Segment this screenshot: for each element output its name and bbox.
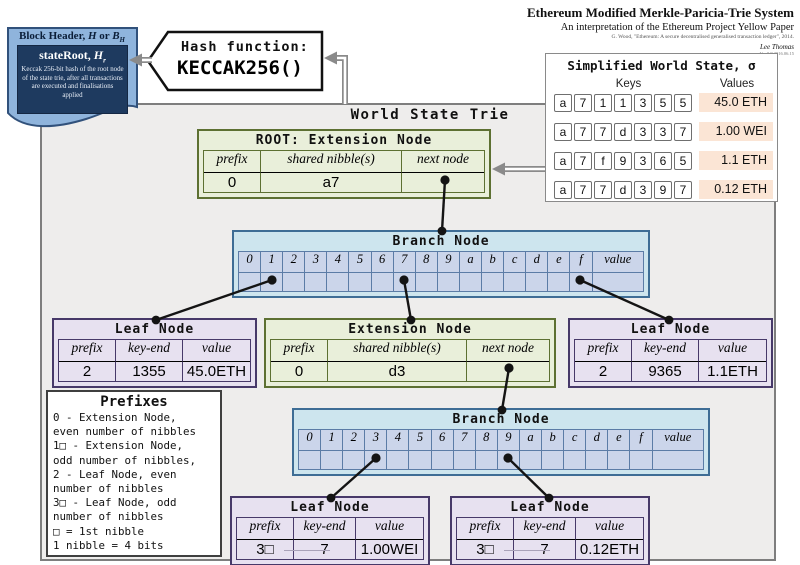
account-value-badge: 1.1 ETH xyxy=(699,151,773,170)
branch-slot-label: a xyxy=(460,252,482,272)
key-nibble-cell: d xyxy=(614,123,632,141)
root-extension-value-row: 0 a7 xyxy=(204,172,484,192)
shared-nibbles-header: shared nibble(s) xyxy=(261,151,402,172)
leaf-node-bottom-right-table: prefix key-end value 3□ 7 0.12ETH xyxy=(456,517,644,560)
branch-slot-cell xyxy=(476,450,498,469)
key-end-header: key-end xyxy=(514,518,576,539)
branch-slot-cell xyxy=(387,450,409,469)
leaf-node-right-value-row: 2 9365 1.1ETH xyxy=(575,361,766,381)
branch-node-2: Branch Node 0123456789abcdefvalue xyxy=(292,408,710,476)
key-nibble-cell: 9 xyxy=(614,152,632,170)
branch-node-2-slot-labels: 0123456789abcdefvalue xyxy=(299,430,703,450)
extension-node-header-row: prefix shared nibble(s) next node xyxy=(271,340,549,361)
leaf-value: 45.0ETH xyxy=(183,361,250,381)
branch-node-2-table: 0123456789abcdefvalue xyxy=(298,429,704,470)
leaf-value: 1.1ETH xyxy=(699,361,766,381)
root-next-node-cell xyxy=(402,172,484,192)
branch-slot-cell xyxy=(432,450,454,469)
world-state-trie-title: World State Trie xyxy=(300,107,560,123)
key-nibble-cell: 3 xyxy=(634,94,652,112)
leaf-node-bottom-left-table: prefix key-end value 3□ 7 1.00WEI xyxy=(236,517,424,560)
branch-slot-cell xyxy=(630,450,652,469)
leaf-node-right-title: Leaf Node xyxy=(574,322,767,339)
document-header: Ethereum Modified Merkle-Paricia-Trie Sy… xyxy=(527,5,794,56)
branch-slot-cell xyxy=(299,450,321,469)
document-title: Ethereum Modified Merkle-Paricia-Trie Sy… xyxy=(527,5,794,21)
document-subtitle: An interpretation of the Ethereum Projec… xyxy=(527,22,794,33)
keys-header: Keys xyxy=(556,78,701,90)
world-state-row: a 7 7 d 3 3 7 1.00 WEI xyxy=(554,122,773,141)
branch-slot-label: 7 xyxy=(394,252,416,272)
branch-slot-label: f xyxy=(570,252,592,272)
branch-node-2-title: Branch Node xyxy=(298,412,704,429)
branch-slot-label: d xyxy=(526,252,548,272)
leaf-node-bottom-right-header-row: prefix key-end value xyxy=(457,518,643,539)
extension-shared-nibbles-value: d3 xyxy=(328,361,467,381)
world-state-rows: a 7 1 1 3 5 5 45.0 ETH a 7 7 d 3 3 7 1.0… xyxy=(554,93,773,209)
root-extension-table: prefix shared nibble(s) next node 0 a7 xyxy=(203,150,485,193)
branch-slot-cell xyxy=(409,450,431,469)
branch-slot-cell xyxy=(482,272,504,291)
shared-nibbles-header: shared nibble(s) xyxy=(328,340,467,361)
branch-node-1-table: 0123456789abcdefvalue xyxy=(238,251,644,292)
branch-node-1-slot-labels: 0123456789abcdefvalue xyxy=(239,252,643,272)
branch-slot-cell xyxy=(372,272,394,291)
branch-slot-cell xyxy=(608,450,630,469)
extension-next-node-cell xyxy=(467,361,549,381)
next-node-header: next node xyxy=(402,151,484,172)
root-extension-node-title: ROOT: Extension Node xyxy=(203,133,485,150)
world-state-row: a 7 1 1 3 5 5 45.0 ETH xyxy=(554,93,773,112)
branch-slot-cell xyxy=(261,272,283,291)
leaf-node-bottom-right-value-row: 3□ 7 0.12ETH xyxy=(457,539,643,559)
branch-slot-label: 7 xyxy=(454,430,476,450)
branch-node-1-title: Branch Node xyxy=(238,234,644,251)
branch-slot-label: c xyxy=(504,252,526,272)
branch-slot-cell xyxy=(239,272,261,291)
account-value-badge: 45.0 ETH xyxy=(699,93,773,112)
extension-prefix-value: 0 xyxy=(271,361,328,381)
prefixes-legend-line: number of nibbles xyxy=(53,482,215,496)
key-nibble-cell: d xyxy=(614,181,632,199)
key-nibble-cell: 7 xyxy=(574,152,592,170)
branch-slot-cell xyxy=(305,272,327,291)
value-header: value xyxy=(699,340,766,361)
prefix-header: prefix xyxy=(271,340,328,361)
extension-node-value-row: 0 d3 xyxy=(271,361,549,381)
branch-slot-cell xyxy=(438,272,460,291)
branch-slot-label: 2 xyxy=(343,430,365,450)
branch-slot-label: 9 xyxy=(438,252,460,272)
branch-slot-cell xyxy=(542,450,564,469)
branch-slot-label: 6 xyxy=(372,252,394,272)
branch-slot-cell xyxy=(349,272,371,291)
prefixes-legend-line: odd number of nibbles, xyxy=(53,454,215,468)
branch-slot-cell xyxy=(454,450,476,469)
prefix-header: prefix xyxy=(237,518,294,539)
leaf-node-left-header-row: prefix key-end value xyxy=(59,340,250,361)
branch-slot-cell xyxy=(593,272,644,291)
leaf-node-right: Leaf Node prefix key-end value 2 9365 1.… xyxy=(568,318,773,388)
branch-slot-label: 5 xyxy=(409,430,431,450)
nibble-link-line xyxy=(284,550,330,551)
key-nibble-cell: a xyxy=(554,123,572,141)
key-nibble-cell: 7 xyxy=(574,123,592,141)
next-node-header: next node xyxy=(467,340,549,361)
leaf-node-left-title: Leaf Node xyxy=(58,322,251,339)
key-nibble-cell: 5 xyxy=(674,152,692,170)
leaf-node-left-table: prefix key-end value 2 1355 45.0ETH xyxy=(58,339,251,382)
branch-slot-label: value xyxy=(593,252,644,272)
root-shared-nibbles-value: a7 xyxy=(261,172,402,192)
prefix-header: prefix xyxy=(59,340,116,361)
prefixes-legend-line: 1□ - Extension Node, xyxy=(53,439,215,453)
leaf-value: 0.12ETH xyxy=(576,539,643,559)
key-nibble-cell: 7 xyxy=(674,181,692,199)
extension-node-table: prefix shared nibble(s) next node 0 d3 xyxy=(270,339,550,382)
branch-slot-label: 4 xyxy=(327,252,349,272)
branch-slot-label: f xyxy=(630,430,652,450)
value-header: value xyxy=(356,518,423,539)
key-nibble-cell: 3 xyxy=(634,123,652,141)
key-end-header: key-end xyxy=(116,340,183,361)
branch-slot-cell xyxy=(460,272,482,291)
hash-function-name: KECCAK256() xyxy=(177,57,303,79)
branch-slot-cell xyxy=(327,272,349,291)
leaf-prefix-value: 3□ xyxy=(457,539,514,559)
value-header: value xyxy=(576,518,643,539)
key-nibble-cell: 5 xyxy=(674,94,692,112)
key-nibble-cell: 9 xyxy=(654,181,672,199)
branch-slot-label: 0 xyxy=(239,252,261,272)
leaf-node-right-header-row: prefix key-end value xyxy=(575,340,766,361)
prefixes-legend-line: 2 - Leaf Node, even xyxy=(53,468,215,482)
account-value-badge: 1.00 WEI xyxy=(699,122,773,141)
branch-slot-label: 8 xyxy=(476,430,498,450)
key-nibble-cell: a xyxy=(554,181,572,199)
branch-slot-label: 3 xyxy=(305,252,327,272)
world-state-title: Simplified World State, σ xyxy=(546,58,777,73)
hash-function-label: Hash function: xyxy=(181,39,309,55)
key-end-header: key-end xyxy=(632,340,699,361)
nibble-link-line xyxy=(504,550,550,551)
extension-node-title: Extension Node xyxy=(270,322,550,339)
prefixes-legend-line: 1 nibble = 4 bits xyxy=(53,539,215,553)
prefixes-legend-title: Prefixes xyxy=(48,394,220,410)
branch-slot-label: 3 xyxy=(365,430,387,450)
extension-node: Extension Node prefix shared nibble(s) n… xyxy=(264,318,556,388)
prefix-header: prefix xyxy=(575,340,632,361)
branch-slot-label: 0 xyxy=(299,430,321,450)
diagram-canvas: World State Trie Block Header, H or BH s… xyxy=(0,0,800,565)
world-state-row: a 7 f 9 3 6 5 1.1 ETH xyxy=(554,151,773,170)
branch-slot-label: 5 xyxy=(349,252,371,272)
prefixes-legend-line: □ = 1st nibble xyxy=(53,525,215,539)
account-value-badge: 0.12 ETH xyxy=(699,180,773,199)
branch-slot-cell xyxy=(570,272,592,291)
leaf-node-left: Leaf Node prefix key-end value 2 1355 45… xyxy=(52,318,257,388)
value-header: value xyxy=(183,340,250,361)
leaf-node-left-value-row: 2 1355 45.0ETH xyxy=(59,361,250,381)
prefixes-legend-line: even number of nibbles xyxy=(53,425,215,439)
branch-slot-cell xyxy=(321,450,343,469)
key-nibble-cell: 1 xyxy=(614,94,632,112)
leaf-node-bottom-right-title: Leaf Node xyxy=(456,500,644,517)
branch-slot-cell xyxy=(526,272,548,291)
leaf-prefix-value: 3□ xyxy=(237,539,294,559)
key-nibble-cell: f xyxy=(594,152,612,170)
branch-slot-label: c xyxy=(564,430,586,450)
leaf-key-end-value: 7 xyxy=(294,539,356,559)
key-nibble-cell: 7 xyxy=(574,181,592,199)
simplified-world-state: Simplified World State, σ Keys Values a … xyxy=(545,53,778,202)
key-nibble-cell: 7 xyxy=(674,123,692,141)
leaf-key-end-value: 9365 xyxy=(632,361,699,381)
branch-slot-label: b xyxy=(482,252,504,272)
root-extension-header-row: prefix shared nibble(s) next node xyxy=(204,151,484,172)
branch-slot-label: 1 xyxy=(321,430,343,450)
leaf-prefix-value: 2 xyxy=(59,361,116,381)
prefixes-legend-line: 3□ - Leaf Node, odd xyxy=(53,496,215,510)
key-nibble-cell: 7 xyxy=(594,181,612,199)
branch-slot-cell xyxy=(548,272,570,291)
leaf-node-bottom-left: Leaf Node prefix key-end value 3□ 7 1.00… xyxy=(230,496,430,565)
branch-slot-cell xyxy=(394,272,416,291)
key-nibble-cell: 5 xyxy=(654,94,672,112)
prefixes-legend: Prefixes 0 - Extension Node,even number … xyxy=(46,390,222,557)
branch-slot-label: e xyxy=(548,252,570,272)
branch-slot-cell xyxy=(564,450,586,469)
key-nibble-cell: 3 xyxy=(634,152,652,170)
branch-slot-label: b xyxy=(542,430,564,450)
branch-slot-label: d xyxy=(586,430,608,450)
branch-slot-cell xyxy=(653,450,704,469)
leaf-node-bottom-right: Leaf Node prefix key-end value 3□ 7 0.12… xyxy=(450,496,650,565)
key-nibble-cell: a xyxy=(554,152,572,170)
prefix-header: prefix xyxy=(457,518,514,539)
key-nibble-cell: 7 xyxy=(574,94,592,112)
branch-slot-label: 2 xyxy=(283,252,305,272)
key-end-header: key-end xyxy=(294,518,356,539)
branch-slot-cell xyxy=(416,272,438,291)
document-citation: G. Wood, "Ethereum: A secure decentralis… xyxy=(527,34,794,40)
key-nibble-cell: a xyxy=(554,94,572,112)
leaf-prefix-value: 2 xyxy=(575,361,632,381)
leaf-node-right-table: prefix key-end value 2 9365 1.1ETH xyxy=(574,339,767,382)
key-nibble-cell: 3 xyxy=(654,123,672,141)
root-prefix-value: 0 xyxy=(204,172,261,192)
branch-slot-label: 1 xyxy=(261,252,283,272)
branch-slot-cell xyxy=(504,272,526,291)
leaf-node-bottom-left-header-row: prefix key-end value xyxy=(237,518,423,539)
values-header: Values xyxy=(704,78,770,90)
prefix-header: prefix xyxy=(204,151,261,172)
branch-slot-label: 8 xyxy=(416,252,438,272)
leaf-node-bottom-left-value-row: 3□ 7 1.00WEI xyxy=(237,539,423,559)
leaf-value: 1.00WEI xyxy=(356,539,423,559)
key-nibble-cell: 6 xyxy=(654,152,672,170)
document-author: Lee Thomas xyxy=(527,43,794,51)
branch-slot-label: value xyxy=(653,430,704,450)
branch-node-2-slot-cells xyxy=(299,450,703,469)
prefixes-legend-lines: 0 - Extension Node,even number of nibble… xyxy=(48,410,220,553)
branch-slot-label: 6 xyxy=(432,430,454,450)
root-extension-node: ROOT: Extension Node prefix shared nibbl… xyxy=(197,129,491,199)
leaf-node-bottom-left-title: Leaf Node xyxy=(236,500,424,517)
prefixes-legend-line: 0 - Extension Node, xyxy=(53,411,215,425)
key-nibble-cell: 1 xyxy=(594,94,612,112)
branch-slot-label: 4 xyxy=(387,430,409,450)
prefixes-legend-line: number of nibbles xyxy=(53,510,215,524)
branch-slot-label: 9 xyxy=(498,430,520,450)
branch-slot-label: a xyxy=(520,430,542,450)
leaf-key-end-value: 7 xyxy=(514,539,576,559)
branch-slot-cell xyxy=(586,450,608,469)
leaf-key-end-value: 1355 xyxy=(116,361,183,381)
branch-slot-cell xyxy=(283,272,305,291)
branch-slot-cell xyxy=(343,450,365,469)
branch-node-1: Branch Node 0123456789abcdefvalue xyxy=(232,230,650,298)
key-nibble-cell: 7 xyxy=(594,123,612,141)
branch-slot-label: e xyxy=(608,430,630,450)
world-state-row: a 7 7 d 3 9 7 0.12 ETH xyxy=(554,180,773,199)
key-nibble-cell: 3 xyxy=(634,181,652,199)
branch-node-1-slot-cells xyxy=(239,272,643,291)
branch-slot-cell xyxy=(498,450,520,469)
branch-slot-cell xyxy=(520,450,542,469)
branch-slot-cell xyxy=(365,450,387,469)
